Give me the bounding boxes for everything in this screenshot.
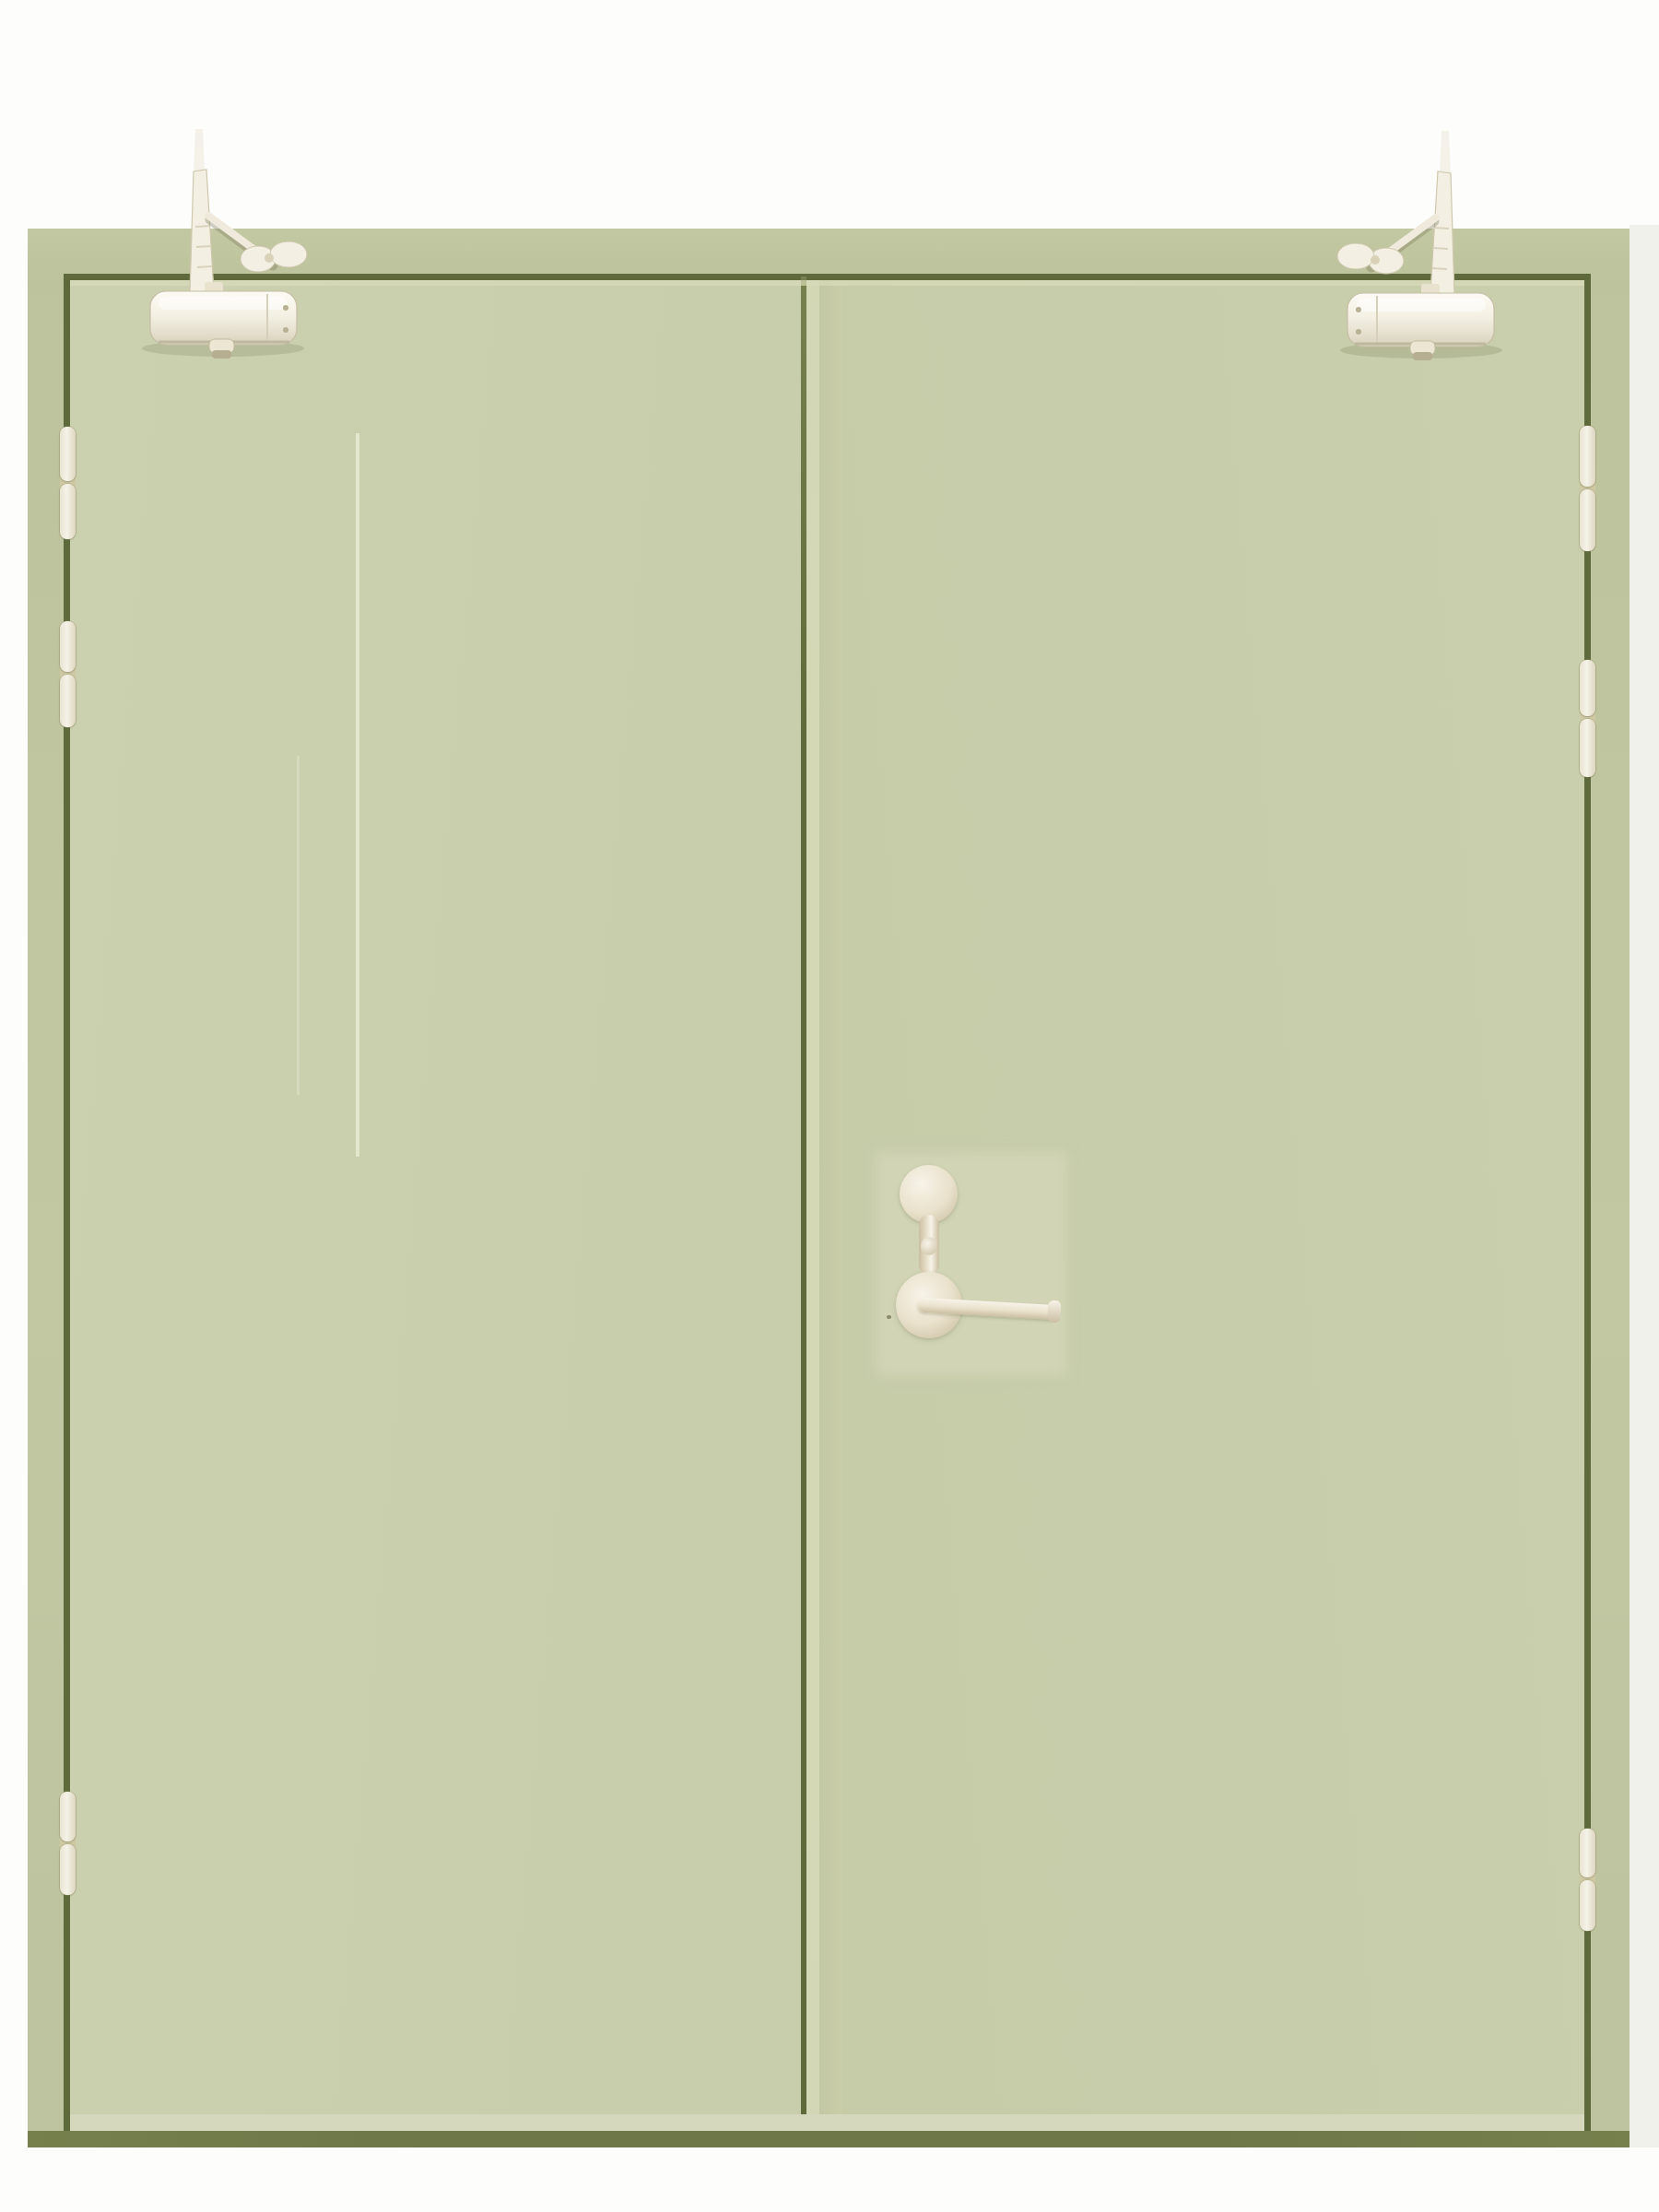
door-bottom-edge (28, 2131, 1630, 2147)
closer-main-arm (190, 170, 214, 292)
closer-frame-shoe (270, 241, 307, 267)
door-closer-left (129, 118, 313, 359)
left-door-leaf (70, 280, 801, 2131)
hinge-knuckle (1580, 660, 1595, 716)
hinge-knuckle (60, 1844, 76, 1895)
hinge-knuckle (60, 1792, 76, 1841)
left-leaf-panel-line-faint (297, 756, 300, 1095)
right-hinge (1580, 1829, 1595, 1931)
background-right-strip (1630, 225, 1659, 2147)
left-hinge (60, 427, 76, 539)
left-hinge (60, 621, 76, 727)
closer-valve-knob-base (212, 350, 231, 359)
hinge-knuckle (60, 675, 76, 727)
door-bottom-highlight (70, 2114, 1584, 2131)
fire-door-photo (0, 0, 1659, 2212)
closer-arm-upper-faint (194, 129, 205, 173)
astragal-strip (819, 280, 842, 2131)
hinge-knuckle (1580, 1829, 1595, 1877)
hinge-knuckle (60, 427, 76, 481)
lock-turn-knob (921, 1237, 937, 1255)
left-hinge (60, 1792, 76, 1895)
hinge-knuckle (1580, 489, 1595, 551)
right-hinge (1580, 426, 1595, 551)
meeting-stile-highlight (806, 280, 819, 2131)
lever-handle-tip (1047, 1300, 1061, 1324)
door-closer-right (1331, 120, 1515, 361)
hinge-knuckle (1580, 1880, 1595, 1931)
closer-arm-pivot (265, 253, 274, 263)
hinge-knuckle (1580, 719, 1595, 777)
hinge-knuckle (60, 484, 76, 539)
hinge-knuckle (60, 621, 76, 672)
left-leaf-panel-line (356, 433, 359, 1157)
paint-speck (887, 1315, 891, 1319)
right-hinge (1580, 660, 1595, 777)
hinge-knuckle (1580, 426, 1595, 487)
